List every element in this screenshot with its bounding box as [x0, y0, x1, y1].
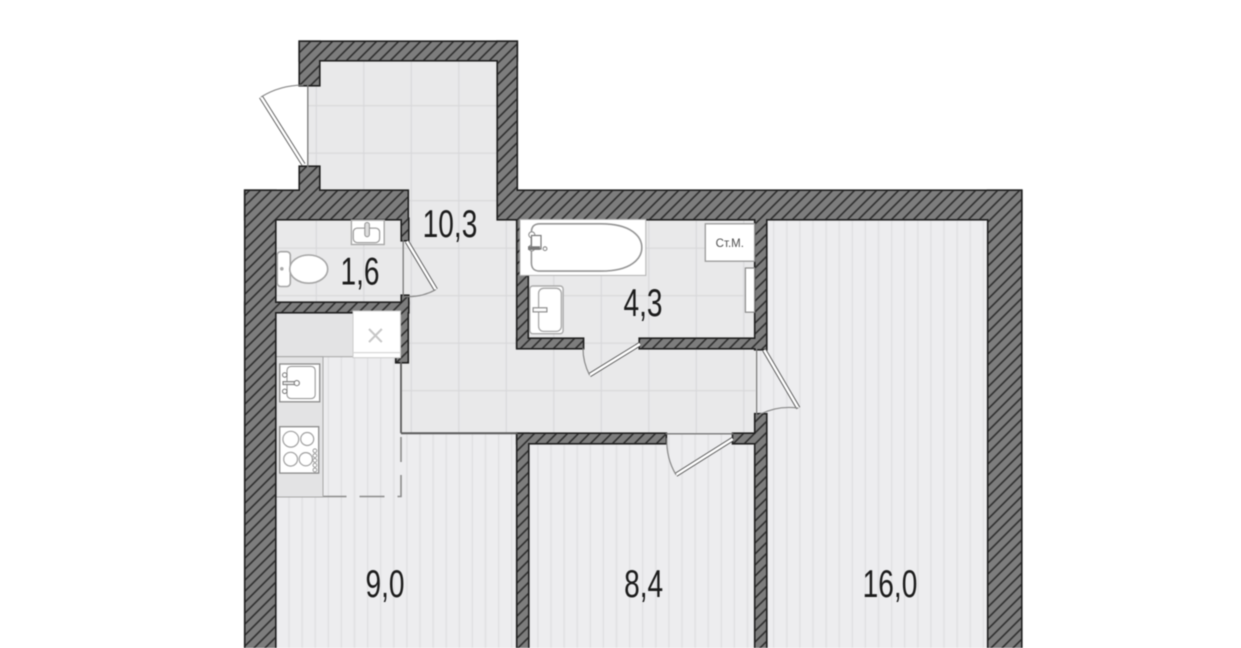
svg-text:Ст.М.: Ст.М. [716, 238, 744, 250]
svg-text:8,4: 8,4 [624, 563, 663, 607]
svg-text:10,3: 10,3 [423, 203, 478, 247]
svg-text:16,0: 16,0 [863, 563, 918, 607]
svg-text:9,0: 9,0 [365, 563, 404, 607]
svg-text:4,3: 4,3 [623, 282, 662, 326]
svg-text:1,6: 1,6 [340, 250, 379, 294]
